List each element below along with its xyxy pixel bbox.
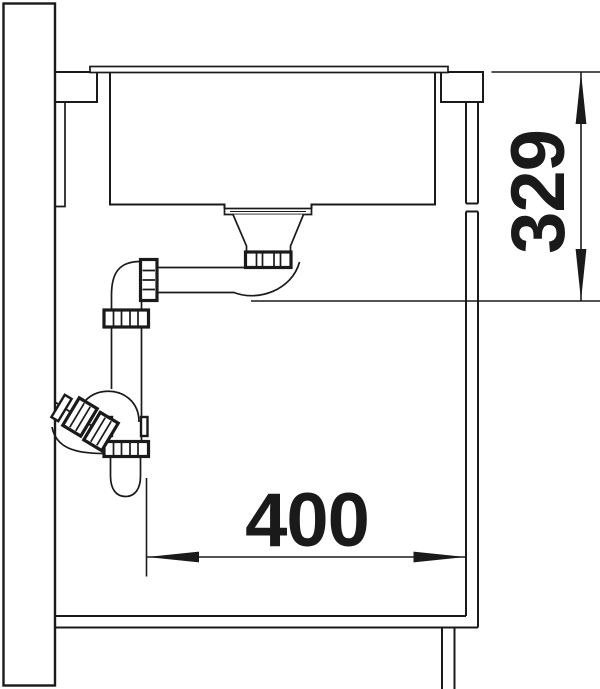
cabinet-right-panel-lower xyxy=(466,212,478,628)
pipe-nut-upper xyxy=(104,310,149,327)
worktop-right-section xyxy=(441,72,483,102)
drain-assembly xyxy=(51,209,311,497)
strainer-nut xyxy=(246,252,292,268)
sink-bowl-right xyxy=(312,73,436,209)
pipe-elbow-outer-curve xyxy=(112,262,141,296)
sink-installation-section-svg: 329 400 xyxy=(0,0,600,689)
arrow-up-icon xyxy=(576,73,587,125)
plinth-panel xyxy=(442,628,455,689)
cabinet-right-panel-upper xyxy=(466,102,478,204)
technical-drawing: 329 400 xyxy=(0,0,600,689)
pipe-nut-lower xyxy=(104,442,149,457)
sink xyxy=(90,67,448,209)
sink-rim xyxy=(90,67,448,73)
cabinet-left-side-panel xyxy=(55,102,65,207)
arrow-left-icon xyxy=(147,552,199,563)
dimension-horizontal-label: 400 xyxy=(245,478,369,563)
wall-hatch xyxy=(4,4,56,686)
trap-u-bend xyxy=(111,457,141,497)
base-cabinet xyxy=(55,102,478,689)
worktop-left-section xyxy=(55,72,97,102)
arrow-right-icon xyxy=(414,552,466,563)
dimension-vertical-label: 329 xyxy=(496,130,581,254)
dimension-horizontal: 400 xyxy=(147,478,466,577)
trap-nut-right-tab xyxy=(141,417,148,436)
sink-bowl-left xyxy=(110,73,225,209)
arrow-down-icon xyxy=(576,249,587,301)
wall-section xyxy=(4,4,56,686)
cabinet-bottom-shelf xyxy=(55,616,478,628)
strainer-body xyxy=(233,215,304,254)
worktop xyxy=(55,72,483,102)
dimension-vertical: 329 xyxy=(251,72,600,301)
